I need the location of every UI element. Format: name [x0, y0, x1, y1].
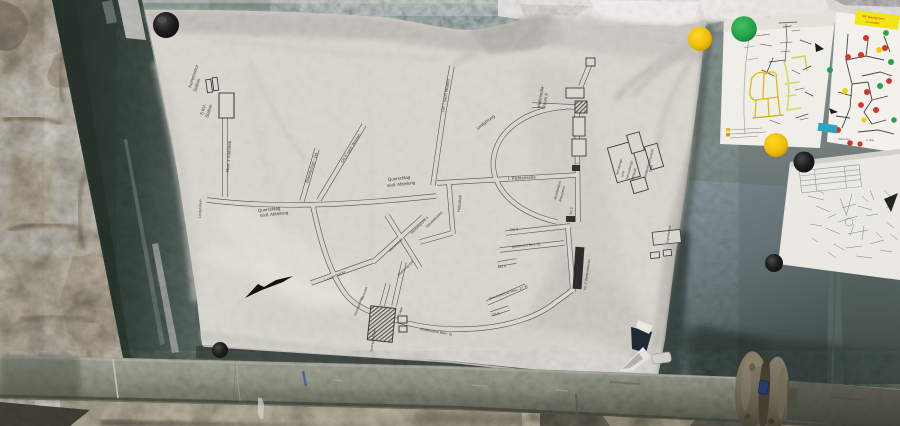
svg-text:Ort 3: Ort 3	[510, 227, 518, 232]
svg-text:Sicherung: Sicherung	[838, 137, 850, 141]
svg-text:Ort 4: Ort 4	[498, 264, 506, 269]
svg-text:Tor 2: Tor 2	[569, 207, 574, 215]
svg-text:Tor 1: Tor 1	[575, 162, 580, 170]
svg-text:u. Orte: u. Orte	[866, 138, 874, 142]
svg-text:Lindenmein: Lindenmein	[198, 199, 203, 218]
